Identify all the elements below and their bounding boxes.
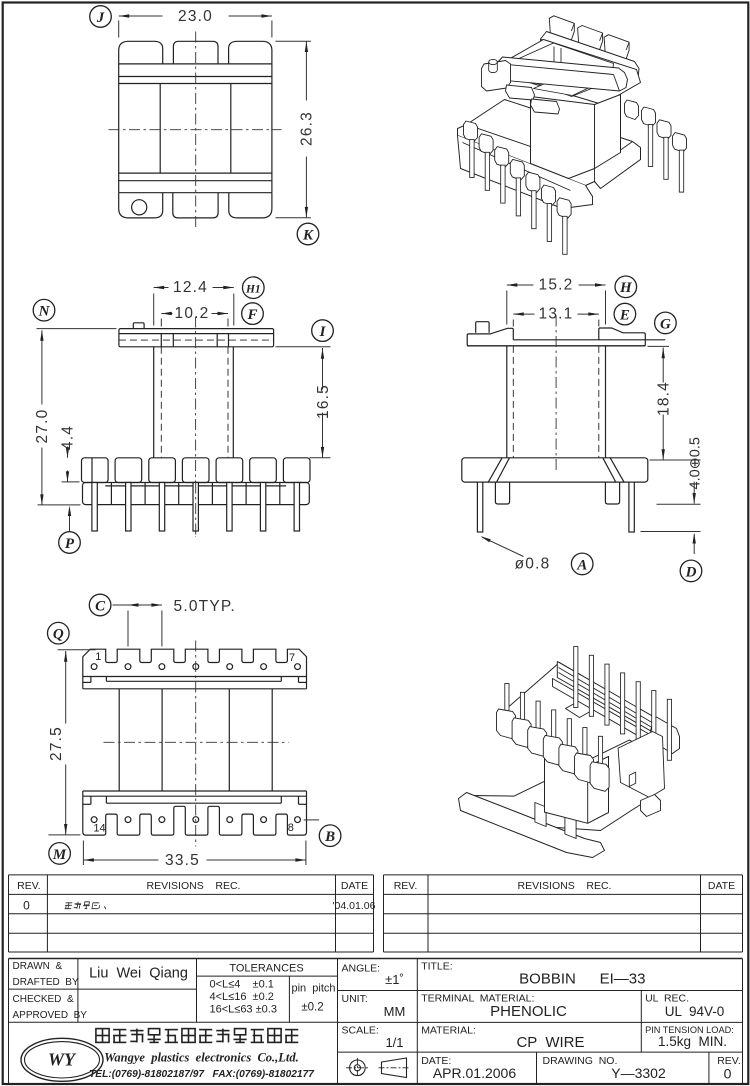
svg-text:N: N <box>38 304 51 320</box>
svg-text:SCALE:: SCALE: <box>342 1025 379 1037</box>
svg-text:14: 14 <box>93 823 105 835</box>
svg-text:PHENOLIC: PHENOLIC <box>490 1003 567 1020</box>
svg-text:8: 8 <box>288 822 294 834</box>
svg-text:27.0: 27.0 <box>34 409 51 444</box>
svg-text:Y—3302: Y—3302 <box>611 1065 666 1081</box>
svg-text:MATERIAL:: MATERIAL: <box>421 1025 476 1037</box>
svg-text:15.2: 15.2 <box>539 277 574 294</box>
svg-text:DATE: DATE <box>708 880 735 892</box>
svg-text:1: 1 <box>95 651 101 663</box>
svg-text:7: 7 <box>289 652 295 664</box>
svg-text:C: C <box>95 598 106 614</box>
svg-text:TEL:(0769)-81802187/97 FAX:(: TEL:(0769)-81802187/97 FAX:(0769)-818021… <box>89 1069 315 1080</box>
svg-text:26.3: 26.3 <box>299 111 316 146</box>
svg-text:REVISIONS REC.: REVISIONS REC. <box>518 880 612 892</box>
svg-text:MM: MM <box>384 1004 406 1019</box>
svg-text:DRAWING NO.: DRAWING NO. <box>543 1055 618 1067</box>
svg-text:B: B <box>324 829 335 845</box>
svg-text:0: 0 <box>23 898 30 912</box>
svg-text:APR.01.2006: APR.01.2006 <box>433 1065 516 1081</box>
svg-text:27.5: 27.5 <box>48 726 65 761</box>
svg-text:'04.01.06: '04.01.06 <box>333 900 376 912</box>
svg-text:H: H <box>619 280 633 296</box>
svg-text:J: J <box>96 10 105 26</box>
svg-text:BOBBIN: BOBBIN <box>519 971 576 988</box>
svg-text:CHECKED &: CHECKED & <box>13 994 74 1005</box>
svg-text:16<L≤63 ±0.3: 16<L≤63 ±0.3 <box>210 1004 277 1016</box>
svg-text:F: F <box>246 307 257 323</box>
svg-text:pin pitch: pin pitch <box>291 983 335 995</box>
svg-text:I: I <box>319 324 327 340</box>
svg-text:G: G <box>660 316 671 332</box>
svg-text:4<L≤16 ±0.2: 4<L≤16 ±0.2 <box>210 991 274 1003</box>
svg-text:M: M <box>52 847 67 863</box>
svg-text:D: D <box>685 564 697 580</box>
svg-text:APPROVED BY: APPROVED BY <box>13 1010 88 1021</box>
svg-text:DRAFTED BY: DRAFTED BY <box>13 977 79 988</box>
svg-text:ø0.8: ø0.8 <box>515 556 551 573</box>
svg-text:WY: WY <box>48 1050 77 1070</box>
svg-text:E: E <box>619 308 630 324</box>
svg-text:P: P <box>65 536 75 552</box>
svg-text:23.0: 23.0 <box>178 8 213 25</box>
svg-text:12.4: 12.4 <box>173 279 208 296</box>
svg-text:1/1: 1/1 <box>385 1035 403 1050</box>
svg-text:0: 0 <box>724 1066 732 1082</box>
svg-text:10.2: 10.2 <box>175 305 210 322</box>
svg-text:REV.: REV. <box>17 880 41 892</box>
svg-text:18.4: 18.4 <box>656 381 673 416</box>
svg-text:EI—33: EI—33 <box>600 971 646 988</box>
svg-text:K: K <box>302 227 314 243</box>
svg-text:CP WIRE: CP WIRE <box>516 1034 584 1051</box>
svg-text:ANGLE:: ANGLE: <box>342 963 381 975</box>
svg-text:H1: H1 <box>245 283 261 295</box>
svg-text:33.5: 33.5 <box>165 852 200 869</box>
svg-text:1.5kg MIN.: 1.5kg MIN. <box>658 1034 727 1049</box>
svg-text:4.4: 4.4 <box>60 425 77 450</box>
svg-text:16.5: 16.5 <box>315 384 332 419</box>
svg-text:REV.: REV. <box>394 880 418 892</box>
svg-text:UL REC.: UL REC. <box>645 993 689 1005</box>
svg-text:UL 94V-0: UL 94V-0 <box>665 1004 725 1019</box>
svg-text:REVISIONS REC.: REVISIONS REC. <box>147 880 241 892</box>
svg-text:±1˚: ±1˚ <box>385 972 404 987</box>
svg-text:Liu Wei Qiang: Liu Wei Qiang <box>89 966 188 982</box>
svg-text:13.1: 13.1 <box>539 306 574 323</box>
svg-text:TOLERANCES: TOLERANCES <box>229 963 303 975</box>
svg-text:0<L≤4 ±0.1: 0<L≤4 ±0.1 <box>210 978 274 990</box>
svg-text:±0.2: ±0.2 <box>301 1002 323 1014</box>
svg-text:DRAWN &: DRAWN & <box>13 961 63 972</box>
svg-text:A: A <box>576 557 587 573</box>
svg-text:Q: Q <box>53 627 64 643</box>
svg-text:5.0TYP.: 5.0TYP. <box>174 598 236 615</box>
svg-text:4.0⊕0.5: 4.0⊕0.5 <box>688 437 704 489</box>
svg-text:UNIT:: UNIT: <box>342 993 368 1005</box>
svg-text:Wangye plastics electronics: Wangye plastics electronics Co.,Ltd. <box>104 1051 299 1065</box>
svg-text:DATE: DATE <box>341 880 368 892</box>
svg-text:TITLE:: TITLE: <box>421 961 453 973</box>
